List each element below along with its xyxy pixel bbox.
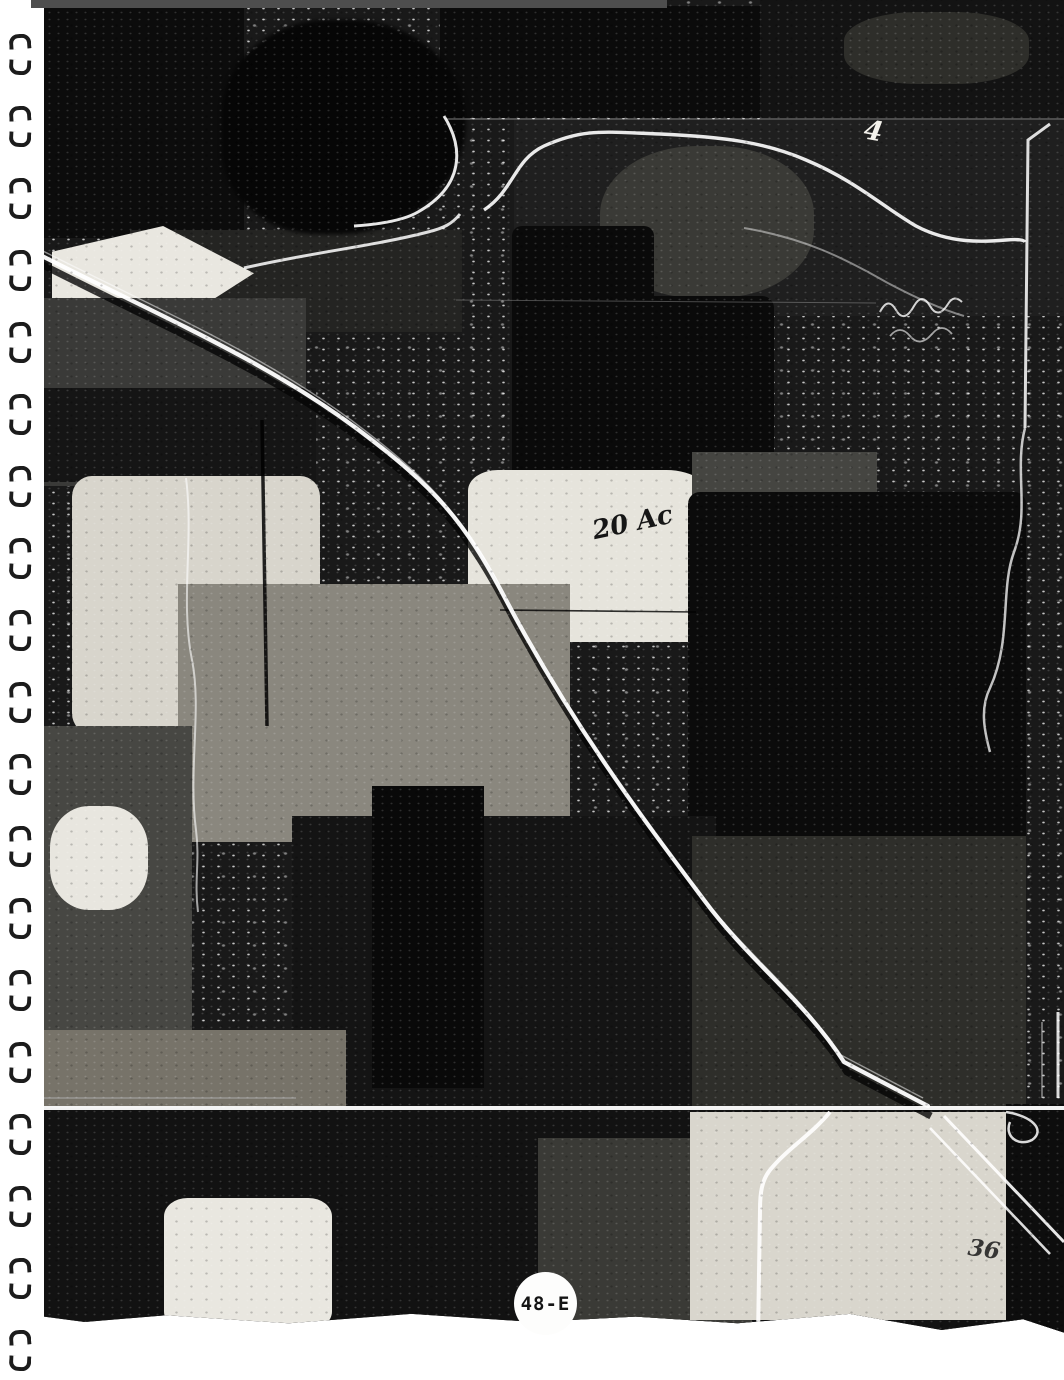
binding-hole-mark	[9, 563, 32, 579]
binding-hole-mark	[9, 969, 32, 985]
binding-hole-mark	[9, 1355, 32, 1371]
binding-hole-mark	[9, 321, 32, 337]
binding-hole-mark	[9, 203, 32, 219]
binding-hole-mark	[9, 635, 32, 651]
binding-hole-mark	[9, 681, 32, 697]
binding-hole-mark	[9, 393, 32, 409]
binding-hole-mark	[9, 491, 32, 507]
binding-hole-mark	[9, 851, 32, 867]
handwritten-section-number: 36	[966, 1234, 1001, 1265]
aerial-photo: 20 Ac 4 36	[44, 0, 1064, 1338]
binding-hole-mark	[9, 131, 32, 147]
scanner-edge-artifact	[31, 0, 667, 8]
binding-hole-mark	[9, 1067, 32, 1083]
binding-holes-strip	[0, 0, 44, 1380]
binding-hole-mark	[9, 177, 32, 193]
binding-hole-mark	[9, 923, 32, 939]
sheet-label-text: 48-E	[521, 1293, 571, 1315]
binding-hole-mark	[9, 825, 32, 841]
binding-hole-mark	[9, 275, 32, 291]
binding-hole-mark	[9, 1283, 32, 1299]
binding-hole-mark	[9, 33, 32, 49]
binding-hole-mark	[9, 753, 32, 769]
scanned-aerial-photo-page: 20 Ac 4 36 48-E	[0, 0, 1064, 1380]
binding-hole-mark	[9, 249, 32, 265]
binding-hole-mark	[9, 1113, 32, 1129]
binding-hole-mark	[9, 779, 32, 795]
photocopy-grain	[44, 0, 1064, 1338]
binding-hole-mark	[9, 897, 32, 913]
binding-hole-mark	[9, 1041, 32, 1057]
binding-hole-mark	[9, 537, 32, 553]
binding-hole-mark	[9, 105, 32, 121]
binding-hole-mark	[9, 1185, 32, 1201]
binding-hole-mark	[9, 1329, 32, 1345]
binding-hole-mark	[9, 1211, 32, 1227]
binding-hole-mark	[9, 707, 32, 723]
sheet-label-circle: 48-E	[514, 1272, 577, 1335]
binding-hole-mark	[9, 995, 32, 1011]
binding-hole-mark	[9, 347, 32, 363]
binding-hole-mark	[9, 1257, 32, 1273]
binding-hole-mark	[9, 419, 32, 435]
binding-hole-mark	[9, 465, 32, 481]
binding-hole-mark	[9, 59, 32, 75]
binding-hole-mark	[9, 1139, 32, 1155]
binding-hole-mark	[9, 609, 32, 625]
